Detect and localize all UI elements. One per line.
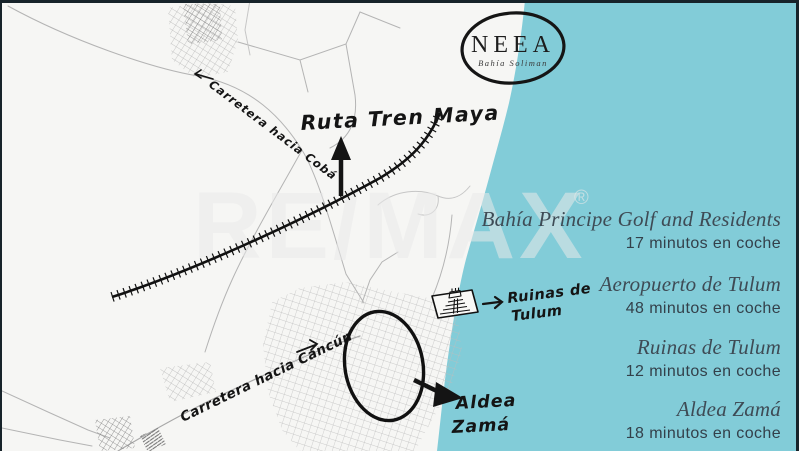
watermark-text: RE/MAX	[193, 173, 586, 279]
north-village-dense-blocks	[183, 4, 222, 44]
map-canvas: RE/MAX ® Ruta Tren Maya Carretera hacia …	[0, 0, 799, 451]
south-settlement-grid	[95, 416, 135, 451]
logo-subtitle: Bahía Soliman	[478, 58, 548, 68]
watermark-registered-icon: ®	[574, 187, 589, 209]
aldea-map-label-line2: Zamá	[450, 415, 511, 438]
south-hatched-block	[140, 428, 166, 451]
map-poster: RE/MAX ® Ruta Tren Maya Carretera hacia …	[0, 0, 799, 451]
ruins-pyramid-icon	[432, 288, 478, 318]
train-route-label: Ruta Tren Maya	[300, 101, 500, 135]
aldea-map-label-line1: Aldea	[453, 391, 517, 414]
watermark: RE/MAX ®	[193, 173, 589, 279]
logo-title: NEEA	[471, 32, 555, 58]
